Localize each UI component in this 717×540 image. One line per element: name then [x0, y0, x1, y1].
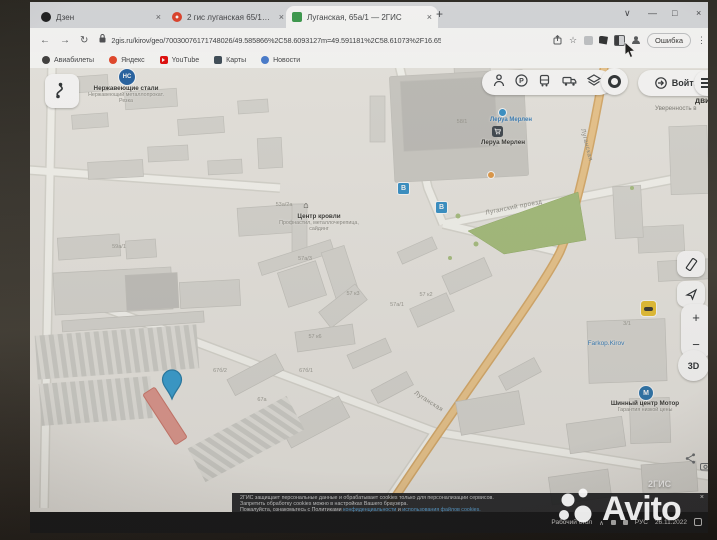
reload-icon[interactable]: ↻: [80, 35, 88, 46]
forward-icon[interactable]: →: [60, 35, 70, 46]
tab-close-icon[interactable]: ×: [427, 12, 432, 22]
avito-watermark: Avito: [552, 486, 681, 532]
store-cart-icon[interactable]: [492, 126, 503, 137]
bookmark-yandex[interactable]: Яндекс: [109, 56, 145, 64]
url-field[interactable]: 2gis.ru/kirov/geo/70030076171748026/49.5…: [111, 36, 441, 45]
browser-tab-bar: Дзен × 2 гис луганская 65/1 киров — Я × …: [30, 2, 708, 28]
building-label: 59а/1: [112, 244, 126, 250]
bookmark-novosti[interactable]: Новости: [261, 56, 300, 64]
poi-leroy-stop-label[interactable]: Леруа Мерлен: [490, 117, 532, 123]
building-label: 67б/2: [213, 368, 227, 374]
bus-stop-icon[interactable]: В: [397, 182, 410, 195]
building-label: 67а: [257, 397, 266, 403]
dzen-favicon-icon: [41, 12, 51, 22]
building-label: 57а/3: [298, 256, 312, 262]
error-button[interactable]: Ошибка: [647, 33, 691, 48]
zoom-in-button[interactable]: +: [681, 304, 708, 331]
back-icon[interactable]: ←: [40, 35, 50, 46]
bookmark-star-icon[interactable]: ☆: [568, 35, 578, 45]
panorama-icon[interactable]: [700, 458, 708, 476]
view-3d-button[interactable]: 3D: [678, 350, 708, 381]
layers-icon[interactable]: [587, 74, 601, 92]
bookmark-karty[interactable]: Карты: [214, 56, 246, 64]
friends-icon[interactable]: [493, 74, 505, 92]
transport-stop-dot[interactable]: [498, 108, 507, 117]
tab-2gis-active[interactable]: Луганская, 65а/1 — 2ГИС ×: [286, 6, 438, 28]
entrance-dot: [487, 171, 495, 179]
tab-yandex-search[interactable]: 2 гис луганская 65/1 киров — Я ×: [166, 6, 290, 28]
map-canvas[interactable]: Луганский проезд Луганская Луганская 58/…: [30, 68, 708, 512]
lock-icon: [99, 34, 106, 46]
tab-close-icon[interactable]: ×: [279, 12, 284, 22]
tab-close-icon[interactable]: ×: [156, 12, 161, 22]
2gis-favicon-icon: [292, 12, 302, 22]
building-label: 67б/1: [299, 368, 313, 374]
roof-center-icon: ⌂: [303, 200, 308, 210]
browser-menu-icon[interactable]: ⋮: [697, 35, 706, 46]
transport-icon[interactable]: [538, 74, 551, 92]
globe-icon: [42, 56, 50, 64]
poi-farkop-label[interactable]: Farkop.Kirov: [588, 340, 625, 347]
map-base-layer: [30, 68, 708, 512]
share-icon[interactable]: [552, 35, 562, 45]
autoshop-icon[interactable]: [640, 300, 657, 317]
poi-steel[interactable]: Нержавеющие стали Нержавеющий металлопро…: [88, 85, 164, 104]
yandex-favicon-icon: [172, 12, 182, 22]
poi-roof-center[interactable]: Центр кровли Профнастил, металлочерепица…: [279, 213, 359, 232]
notification-icon[interactable]: [694, 518, 702, 528]
building-label: 57 к3: [346, 291, 359, 297]
tab-search-icon[interactable]: ∨: [624, 8, 631, 19]
measure-button[interactable]: [677, 251, 705, 277]
parking-icon[interactable]: P: [515, 74, 528, 92]
poi-leroy-store[interactable]: Леруа Мерлен: [481, 139, 525, 146]
building-label: 57 к6: [308, 334, 321, 340]
tab-dzen[interactable]: Дзен ×: [35, 6, 167, 28]
route-button[interactable]: [45, 74, 79, 108]
maps-icon: [214, 56, 222, 64]
avito-wordmark: Avito: [602, 486, 681, 532]
tyre-center-icon[interactable]: М: [638, 385, 654, 401]
poi-tyre-center[interactable]: Шинный центр Мотор Гарантия низкой цены: [611, 400, 679, 413]
building-label: 3/1: [623, 321, 631, 327]
building-label: 57а/1: [390, 302, 404, 308]
monitor-screen: Дзен × 2 гис луганская 65/1 киров — Я × …: [30, 2, 708, 533]
ad-teaser: дви Уверенность в: [655, 96, 708, 112]
avito-logo-icon: [552, 486, 602, 532]
traffic-button[interactable]: [601, 68, 628, 95]
bookmark-youtube[interactable]: YouTube: [160, 56, 200, 64]
pinned-extension-icon[interactable]: [599, 36, 608, 45]
map-layers-toolbar: P: [482, 70, 612, 95]
tab-title: Дзен: [56, 13, 148, 22]
bookmark-aviabilety[interactable]: Авиабилеты: [42, 56, 94, 64]
youtube-icon: [160, 56, 168, 64]
building-label: 53а/2а: [276, 202, 293, 208]
building-label: 58/1: [457, 119, 468, 125]
minimize-button[interactable]: —: [648, 8, 657, 18]
yandex-icon: [109, 56, 117, 64]
close-window-button[interactable]: ×: [696, 8, 701, 18]
svg-text:P: P: [519, 78, 524, 85]
share-icon[interactable]: [685, 451, 696, 469]
bus-stop-icon[interactable]: В: [435, 201, 448, 214]
maximize-button[interactable]: □: [672, 8, 677, 18]
truck-icon[interactable]: [562, 74, 577, 92]
new-tab-button[interactable]: +: [436, 7, 443, 21]
selected-location-pin[interactable]: [160, 369, 184, 406]
mouse-cursor: [624, 42, 637, 64]
bookmarks-bar: Авиабилеты Яндекс YouTube Карты Новости: [30, 52, 708, 69]
extension-icon[interactable]: [584, 36, 593, 45]
login-arrow-icon: [655, 77, 667, 89]
cookie-close-icon[interactable]: ×: [700, 495, 704, 501]
building-label: 57 к2: [419, 292, 432, 298]
news-icon: [261, 56, 269, 64]
steel-company-icon[interactable]: НС: [118, 68, 136, 86]
